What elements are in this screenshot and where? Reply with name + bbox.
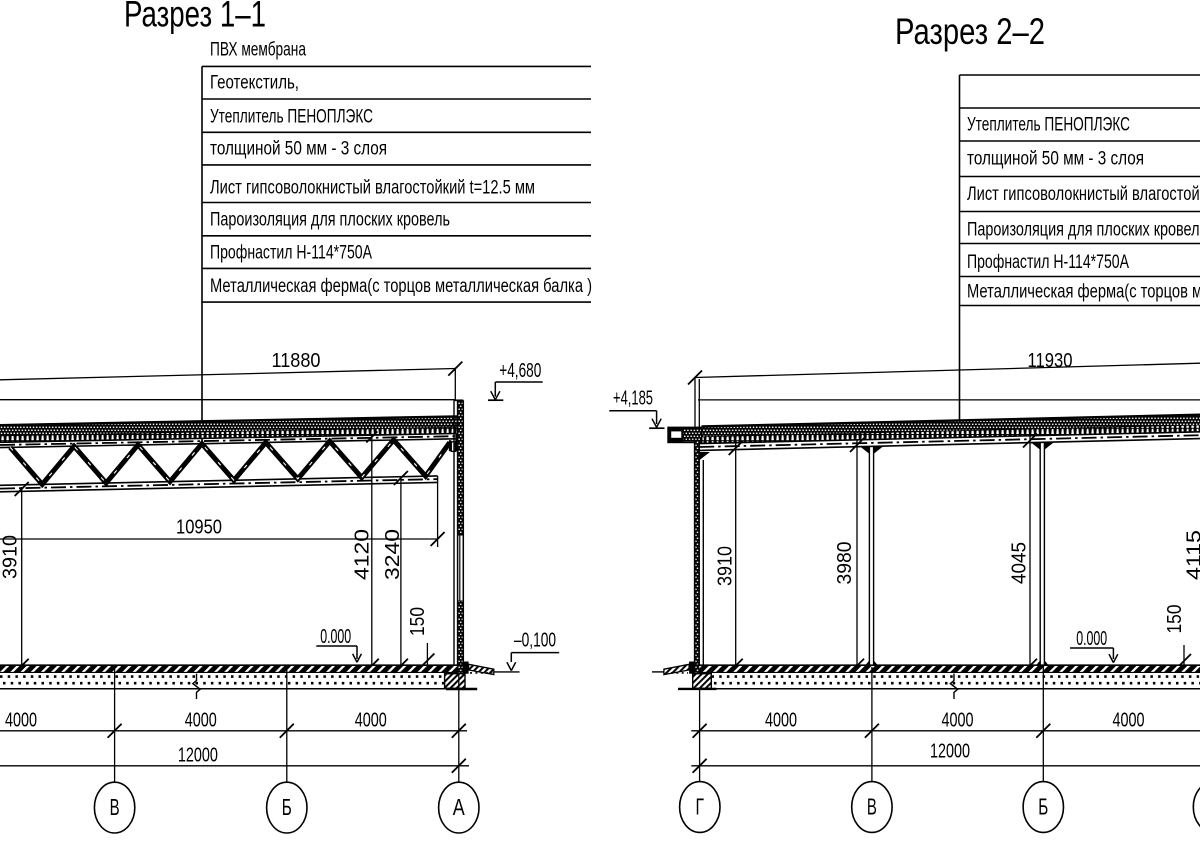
- svg-text:3910: 3910: [0, 535, 22, 579]
- svg-text:3980: 3980: [834, 542, 856, 585]
- svg-text:+4,185: +4,185: [613, 388, 653, 410]
- svg-text:Г: Г: [696, 794, 705, 820]
- svg-text:4045: 4045: [1009, 542, 1031, 584]
- svg-text:12000: 12000: [930, 741, 970, 763]
- svg-text:0.000: 0.000: [1076, 628, 1107, 650]
- svg-text:4000: 4000: [765, 710, 797, 732]
- svg-text:10950: 10950: [176, 517, 222, 539]
- svg-text:Б: Б: [282, 794, 292, 820]
- svg-text:+4,680: +4,680: [499, 360, 541, 382]
- svg-text:150: 150: [1164, 605, 1186, 634]
- svg-text:Разрез 2–2: Разрез 2–2: [895, 11, 1045, 52]
- svg-text:4000: 4000: [5, 710, 37, 732]
- svg-text:ПВХ мембрана: ПВХ мембрана: [210, 40, 306, 61]
- svg-text:Профнастил Н-114*750А: Профнастил Н-114*750А: [210, 243, 372, 264]
- svg-text:3240: 3240: [382, 529, 404, 580]
- svg-text:12000: 12000: [178, 745, 218, 767]
- svg-text:4000: 4000: [942, 710, 974, 732]
- svg-text:В: В: [110, 794, 120, 820]
- svg-text:толщиной 50 мм - 3 слоя: толщиной 50 мм - 3 слоя: [210, 139, 387, 160]
- svg-text:3910: 3910: [715, 546, 737, 586]
- svg-text:Утеплитель ПЕНОПЛЭКС: Утеплитель ПЕНОПЛЭКС: [967, 115, 1130, 136]
- svg-text:150: 150: [407, 607, 429, 636]
- svg-text:Геотекстиль,: Геотекстиль,: [210, 73, 299, 94]
- svg-text:4000: 4000: [185, 710, 217, 732]
- svg-text:4000: 4000: [355, 710, 387, 732]
- svg-text:Утеплитель ПЕНОПЛЭКС: Утеплитель ПЕНОПЛЭКС: [210, 107, 373, 128]
- svg-text:4115: 4115: [1184, 530, 1200, 580]
- svg-text:А: А: [453, 794, 466, 820]
- svg-text:11930: 11930: [1028, 350, 1073, 372]
- svg-text:Металлическая ферма(с торцов м: Металлическая ферма(с торцов металлическ…: [210, 276, 592, 297]
- svg-text:Разрез 1–1: Разрез 1–1: [124, 0, 266, 35]
- svg-text:Б: Б: [1038, 794, 1048, 820]
- svg-text:Металлическая ферма(с торцов м: Металлическая ферма(с торцов металлическ…: [967, 282, 1200, 303]
- svg-text:Пароизоляция для плоских крове: Пароизоляция для плоских кровель: [967, 220, 1200, 241]
- svg-text:Лист гипсоволокнистый влагосто: Лист гипсоволокнистый влагостойкий t=12.…: [210, 178, 535, 199]
- svg-text:В: В: [867, 794, 877, 820]
- svg-text:0.000: 0.000: [320, 626, 351, 648]
- svg-text:4120: 4120: [352, 529, 374, 580]
- svg-text:Профнастил Н-114*750А: Профнастил Н-114*750А: [967, 252, 1129, 273]
- svg-text:–0,100: –0,100: [514, 630, 556, 652]
- svg-text:толщиной 50 мм - 3 слоя: толщиной 50 мм - 3 слоя: [967, 149, 1144, 170]
- svg-text:4000: 4000: [1113, 710, 1145, 732]
- svg-text:11880: 11880: [272, 350, 321, 372]
- svg-text:Пароизоляция для плоских крове: Пароизоляция для плоских кровель: [210, 210, 450, 231]
- svg-text:Лист гипсоволокнистый влагосто: Лист гипсоволокнистый влагостойкий t=12.…: [967, 184, 1200, 205]
